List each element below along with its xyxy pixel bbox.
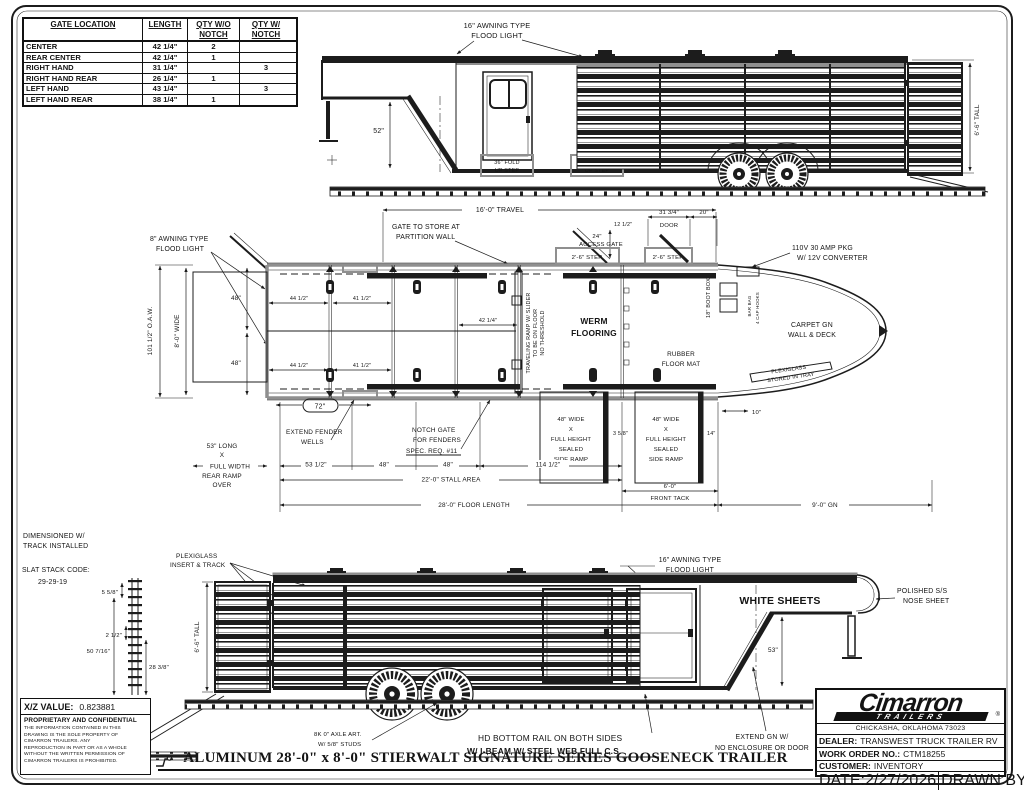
- roof: [273, 575, 857, 583]
- rear-ramp-label: FULL WIDTH: [210, 464, 250, 471]
- cell-length: 42 1/4": [143, 53, 188, 63]
- step-box-2: 2'-6" STEP: [645, 248, 692, 264]
- cell-qty-w: [240, 95, 292, 105]
- dim: 48": [443, 462, 453, 469]
- xz-value-row: X/Z VALUE: 0.823881: [21, 699, 150, 715]
- work-order-value: CTM18255: [903, 749, 945, 759]
- cell-qty-wo: [188, 84, 240, 94]
- date-value: 2/27/2026: [865, 772, 936, 790]
- boot-box: [720, 299, 737, 312]
- ramp-note: TO BE ON FLOOR: [533, 309, 539, 358]
- stall-partitions: [267, 265, 716, 398]
- dim-track-note: TRACK INSTALLED: [23, 543, 88, 550]
- brand-banner: TRAILERS: [833, 712, 988, 721]
- proprietary-line: WITHOUT THE WRITTEN PERMISSION OF: [24, 752, 147, 759]
- dealer-label: DEALER:: [819, 736, 857, 746]
- ramp-label: 48" WIDE: [557, 417, 584, 423]
- step-label: 2'-6" STEP: [653, 255, 684, 261]
- slat-code-value: 29-29-19: [38, 579, 67, 586]
- dim: 31 3/4": [659, 210, 679, 216]
- dim: 114 1/2": [536, 462, 561, 469]
- table-row: RIGHT HAND REAR 26 1/4" 1: [24, 74, 296, 85]
- carpet-label: WALL & DECK: [788, 332, 836, 339]
- bottom-rail-label: HD BOTTOM RAIL ON BOTH SIDES: [478, 733, 622, 743]
- cell-qty-wo: 2: [188, 42, 240, 52]
- brand-sub: TRAILERS: [875, 712, 948, 721]
- cell-qty-wo: 1: [188, 53, 240, 63]
- dim-front-tack: 6'-0": [664, 484, 677, 490]
- dim: 20": [699, 210, 708, 216]
- flood-light-label: 16" AWNING TYPE: [464, 21, 531, 30]
- step-box-1: 2'-6" STEP: [556, 248, 619, 264]
- ramp-label: SIDE RAMP: [649, 457, 683, 463]
- dim-floor-length: 28'-0" FLOOR LENGTH: [438, 502, 510, 509]
- nose-sheet-label: POLISHED S/S: [897, 588, 947, 595]
- rear-ramp-label: 53" LONG: [207, 443, 238, 450]
- cell-location: LEFT HAND REAR: [24, 95, 143, 105]
- cell-length: 38 1/4": [143, 95, 188, 105]
- dealer-row: DEALER: TRANSWEST TRUCK TRAILER RV: [817, 734, 1004, 747]
- dim: 12 1/2": [614, 222, 632, 228]
- dim: 3 5/8": [613, 431, 628, 437]
- title-block: Cimarron TRAILERS ® CHICKASHA, OKLAHOMA …: [815, 688, 1006, 777]
- flood-light-label: 16" AWNING TYPE: [659, 557, 722, 564]
- drawing-sheet: 16" AWNING TYPE FLOOD LIGHT 52": [0, 0, 1024, 791]
- notch-gate-label: SPEC. REQ. #11: [406, 448, 458, 455]
- date-row: DATE: 2/27/2026 DRAWN BY: AJ: [817, 771, 1004, 784]
- flood-light-label: FLOOD LIGHT: [471, 31, 523, 40]
- dim-track-note: DIMENSIONED W/: [23, 533, 85, 540]
- dim: 41 1/2": [353, 296, 371, 302]
- cell-qty-w: [240, 74, 292, 84]
- wheel: [421, 668, 473, 720]
- gate-table-header-row: GATE LOCATION LENGTH QTY W/O NOTCH QTY W…: [24, 19, 296, 42]
- cell-location: LEFT HAND: [24, 84, 143, 94]
- dim-53: 53": [768, 647, 778, 654]
- roof-vents: [595, 50, 795, 56]
- cell-qty-w: 3: [240, 84, 292, 94]
- customer-row: CUSTOMER: INVENTORY: [817, 760, 1004, 771]
- rubber-mat-label: RUBBER: [667, 351, 695, 358]
- col-header-qty-w-notch: QTY W/ NOTCH: [240, 19, 292, 40]
- rear-ramp-label: X: [220, 452, 225, 459]
- carpet-label: CARPET GN: [791, 322, 833, 329]
- col-header-gate-location: GATE LOCATION: [24, 19, 143, 40]
- dim: 48": [231, 360, 241, 367]
- ramp-label: X: [664, 427, 668, 433]
- gate-store-label: GATE TO STORE AT: [392, 224, 461, 231]
- proprietary-line: THE INFORMATION CONTAINED IN THIS: [24, 726, 147, 733]
- power-pkg-label: W/ 12V CONVERTER: [797, 255, 868, 262]
- drawn-by-label: DRAWN BY:: [941, 772, 1024, 790]
- side-ramp-2: 48" WIDE X FULL HEIGHT SEALED SIDE RAMP: [635, 392, 703, 483]
- table-row: LEFT HAND 43 1/4" 3: [24, 84, 296, 95]
- cell-location: REAR CENTER: [24, 53, 143, 63]
- plexi-insert-label: PLEXIGLASS: [176, 553, 217, 560]
- tack-wall-hooks: [624, 288, 629, 365]
- gate-table: GATE LOCATION LENGTH QTY W/O NOTCH QTY W…: [22, 17, 298, 107]
- werm-flooring-label: FLOORING: [571, 328, 617, 338]
- dim: 41 1/2": [353, 363, 371, 369]
- ramp-label: X: [569, 427, 573, 433]
- ramp-label: FULL HEIGHT: [551, 437, 591, 443]
- dim-wide: 8'-0" WIDE: [174, 314, 181, 347]
- plexi-insert-label: INSERT & TRACK: [170, 562, 226, 569]
- cell-qty-w: [240, 53, 292, 63]
- dim: 28 3/8": [149, 665, 169, 671]
- dim-gn: 9'-0" GN: [812, 502, 838, 509]
- cell-qty-w: [240, 42, 292, 52]
- boot-box-label: 18" BOOT BOX: [706, 278, 712, 318]
- cell-qty-wo: 1: [188, 74, 240, 84]
- work-order-row: WORK ORDER NO.: CTM18255: [817, 747, 1004, 760]
- ramp-label: 48" WIDE: [652, 417, 679, 423]
- axle-label: 8K 0" AXLE ART.: [314, 732, 362, 738]
- cap-hooks-label: 4 CAP HOOKS: [755, 292, 760, 324]
- flood-light-label: FLOOD LIGHT: [156, 246, 205, 253]
- tack-door: [483, 72, 532, 160]
- dim-52: 52": [373, 128, 384, 135]
- dim: 24": [592, 234, 601, 240]
- slat-stack-detail: 5 5/8" 2 1/2" 50 7/16" 28 3/8": [87, 578, 169, 695]
- axle-label: W/ 5/8" STUDS: [318, 742, 361, 748]
- slat-code-label: SLAT STACK CODE:: [22, 567, 90, 574]
- dim: 5 5/8": [102, 590, 118, 596]
- gooseneck-front: [319, 60, 456, 173]
- cell-location: CENTER: [24, 42, 143, 52]
- dealer-value: TRANSWEST TRUCK TRAILER RV: [860, 736, 997, 746]
- customer-value: INVENTORY: [874, 761, 923, 771]
- date-label: DATE:: [819, 772, 865, 790]
- roof-vents: [327, 568, 608, 573]
- ramp-label: SEALED: [654, 447, 678, 453]
- company-city: CHICKASHA, OKLAHOMA 73023: [817, 723, 1004, 734]
- ground-track: [185, 700, 813, 709]
- step-label: UP STEP: [495, 168, 520, 174]
- side-ramp-1: 48" WIDE X FULL HEIGHT SEALED SIDE RAMP: [540, 392, 608, 483]
- dim: 14": [707, 431, 716, 437]
- dim: 48": [231, 295, 241, 302]
- balloon-72: 72": [315, 404, 326, 411]
- rubber-mat-label: FLOOR MAT: [662, 361, 701, 368]
- gate-store-label: PARTITION WALL: [396, 234, 455, 241]
- table-row: CENTER 42 1/4" 2: [24, 42, 296, 53]
- roof: [322, 56, 908, 63]
- drawing-canvas: 16" AWNING TYPE FLOOD LIGHT 52": [0, 0, 1024, 791]
- flood-light-label: 8" AWNING TYPE: [150, 236, 209, 243]
- cell-location: RIGHT HAND REAR: [24, 74, 143, 84]
- ramp-note: NO THRESHOLD: [540, 310, 546, 355]
- cell-qty-wo: 1: [188, 95, 240, 105]
- step-label: 2'-6" STEP: [572, 255, 603, 261]
- proprietary-line: CIMARRON TRAILERS IS PROHIBITED.: [24, 759, 147, 766]
- top-side-elevation: 16" AWNING TYPE FLOOD LIGHT 52": [319, 21, 988, 196]
- xz-label: X/Z VALUE:: [24, 702, 73, 712]
- cell-qty-wo: [188, 63, 240, 73]
- boot-box: [720, 283, 737, 296]
- legal-block: X/Z VALUE: 0.823881 PROPRIETARY AND CONF…: [20, 698, 151, 775]
- ramp-label: SEALED: [559, 447, 583, 453]
- white-sheets-label: WHITE SHEETS: [739, 595, 820, 607]
- interior-dims: 44 1/2" 41 1/2" 44 1/2" 41 1/2" 42 1/4": [269, 296, 517, 370]
- cell-location: RIGHT HAND: [24, 63, 143, 73]
- extend-gn-label: EXTEND GN W/: [736, 734, 789, 741]
- dim-stall-area: 22'-0" STALL AREA: [421, 477, 481, 484]
- proprietary-note: PROPRIETARY AND CONFIDENTIAL THE INFORMA…: [21, 715, 150, 766]
- dim-travel: 16'-0" TRAVEL: [476, 207, 524, 214]
- notch-gate-label: FOR FENDERS: [413, 437, 461, 444]
- cimarron-logo: Cimarron TRAILERS ®: [817, 690, 1004, 723]
- customer-label: CUSTOMER:: [819, 761, 871, 771]
- dim-oaw: 101 1/2" O.A.W.: [147, 307, 154, 356]
- rear-ramp-label: OVER: [213, 482, 232, 489]
- cell-length: 43 1/4": [143, 84, 188, 94]
- dim: 50 7/16": [87, 649, 110, 655]
- table-row: LEFT HAND REAR 38 1/4" 1: [24, 95, 296, 105]
- cell-length: 26 1/4": [143, 74, 188, 84]
- work-order-label: WORK ORDER NO.:: [819, 749, 900, 759]
- ramp-label: FULL HEIGHT: [646, 437, 686, 443]
- bar-bag-label: BAR BAG: [747, 295, 752, 316]
- dim-tall: 6'-6" TALL: [194, 621, 201, 652]
- table-row: REAR CENTER 42 1/4" 1: [24, 53, 296, 64]
- step-label: 36" FOLD: [494, 160, 519, 166]
- notch-gate-label: NOTCH GATE: [412, 427, 455, 434]
- wheel: [366, 668, 418, 720]
- ground-track: [330, 187, 985, 196]
- nose-sheet-label: NOSE SHEET: [903, 598, 950, 605]
- ramp-note: TRAVELING RAMP W/ SLIDER: [526, 293, 532, 374]
- rear-ramp-label: REAR RAMP: [202, 473, 242, 480]
- dim: 44 1/2": [290, 296, 308, 302]
- extend-fender-label: WELLS: [301, 439, 324, 446]
- dim: 48": [379, 462, 389, 469]
- dim-tall: 6'-6" TALL: [974, 104, 981, 135]
- dim: 42 1/4": [479, 318, 497, 324]
- werm-flooring-label: WERM: [580, 316, 607, 326]
- col-header-qty-wo-notch: QTY W/O NOTCH: [188, 19, 240, 40]
- proprietary-line: CIMARRON TRAILERS. ANY: [24, 739, 147, 746]
- cell-qty-w: 3: [240, 63, 292, 73]
- dim: 53 1/2": [305, 462, 326, 469]
- power-pkg-label: 110V 30 AMP PKG: [792, 245, 853, 252]
- door-label: DOOR: [660, 223, 678, 229]
- proprietary-title: PROPRIETARY AND CONFIDENTIAL: [24, 717, 147, 724]
- table-row: RIGHT HAND 31 1/4" 3: [24, 63, 296, 74]
- dim: 44 1/2": [290, 363, 308, 369]
- dim: 10": [752, 410, 761, 416]
- bottom-side-elevation: DIMENSIONED W/ TRACK INSTALLED SLAT STAC…: [22, 533, 950, 760]
- col-header-length: LENGTH: [143, 19, 188, 40]
- xz-value: 0.823881: [79, 702, 115, 712]
- sheet-title: ALUMINUM 28'-0" x 8'-0" STIERWALT SIGNAT…: [158, 750, 813, 771]
- cell-length: 31 1/4": [143, 63, 188, 73]
- dim-front-tack: FRONT TACK: [651, 496, 690, 502]
- registered-mark: ®: [996, 712, 1000, 718]
- cell-length: 42 1/4": [143, 42, 188, 52]
- floor-plan: 16'-0" TRAVEL GATE TO STORE AT PARTITION…: [147, 204, 932, 512]
